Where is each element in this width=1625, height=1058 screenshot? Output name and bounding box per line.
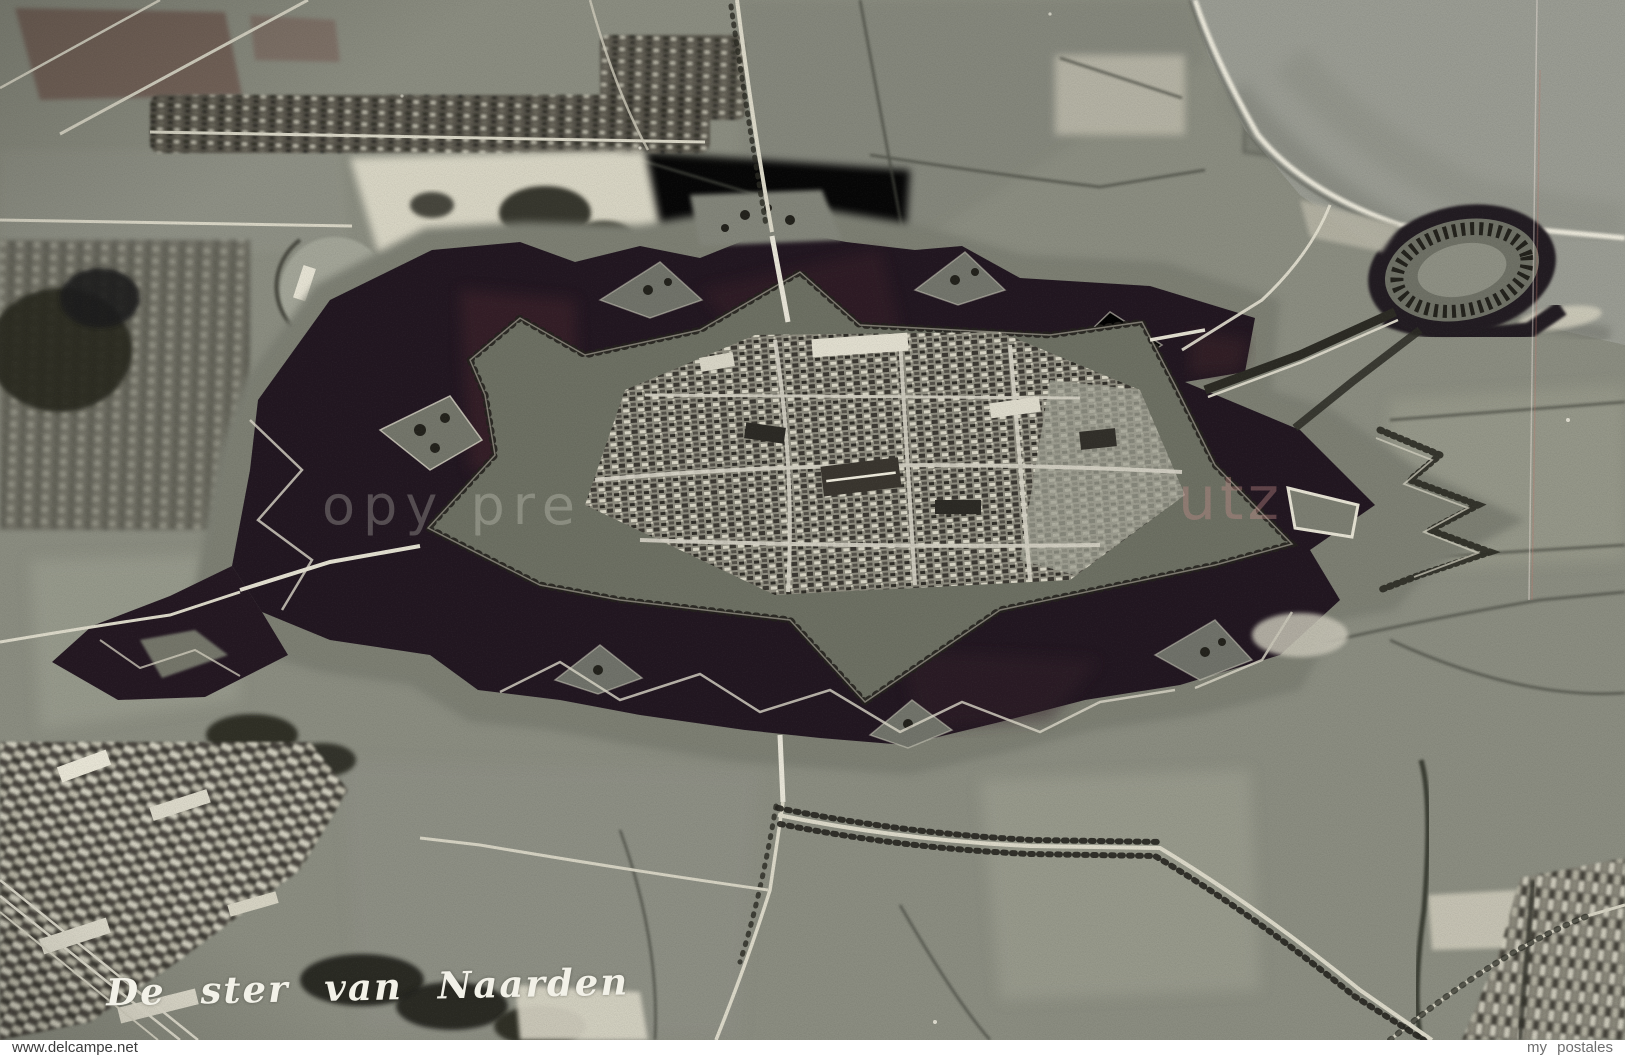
aerial-photo [0, 0, 1625, 1058]
photo-caption: De ster van Naarden [106, 962, 527, 1015]
footer-bar [0, 1040, 1625, 1058]
vignette-top-left [0, 0, 700, 500]
postcard: opy pre utz De ster van Naarden www.delc… [0, 0, 1625, 1058]
my-postales-watermark: my postales [1527, 1039, 1613, 1057]
delcampe-watermark: www.delcampe.net [12, 1039, 138, 1057]
